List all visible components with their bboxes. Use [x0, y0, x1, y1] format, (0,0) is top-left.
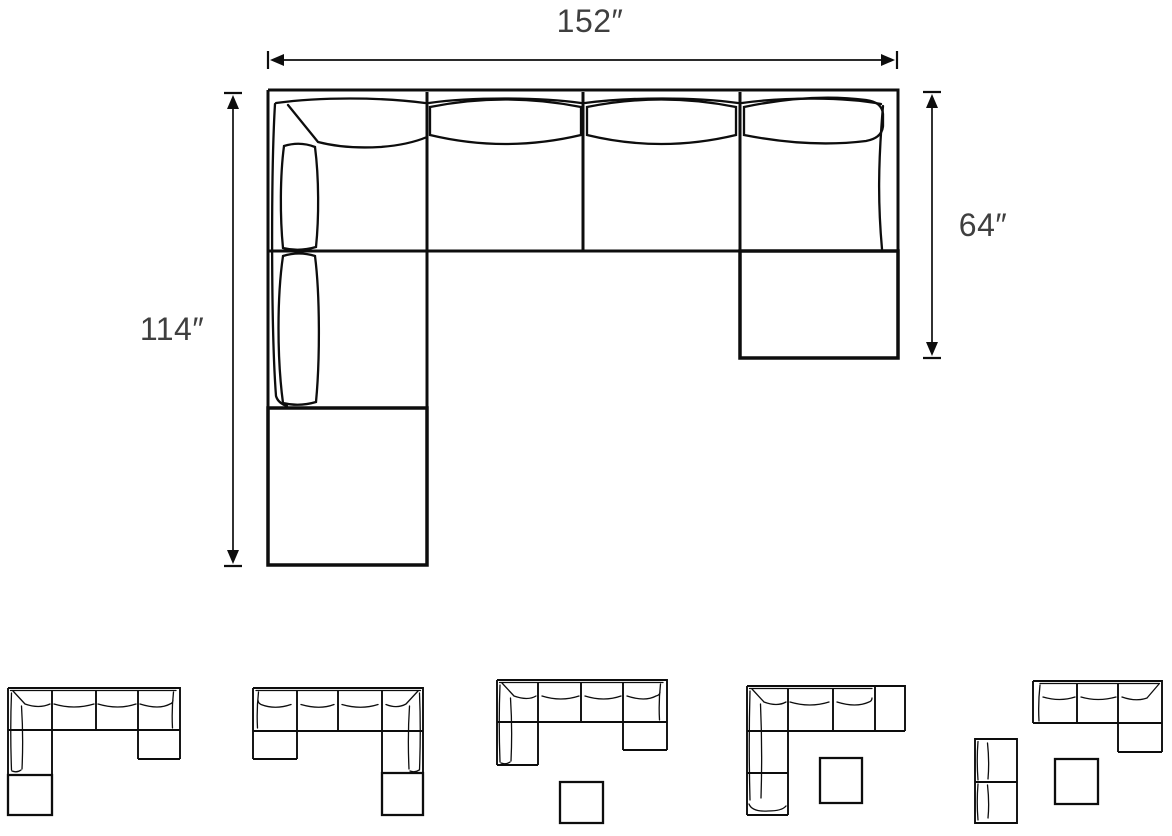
thumb4-ottoman-box	[820, 758, 862, 803]
page: 152″ 114″ 64″	[0, 0, 1172, 836]
chaise-back-cushion-upper	[281, 144, 318, 250]
thumbnail-config-5[interactable]	[975, 681, 1162, 823]
chaise-back-cushion-lower	[279, 254, 319, 405]
thumb4-frame	[747, 686, 905, 815]
left-height-dimension-label: 114″	[140, 311, 204, 347]
thumb3-frame	[497, 680, 667, 765]
thumb5-sofa-frame	[1033, 681, 1162, 752]
arrow-up-icon	[926, 94, 938, 108]
thumb2-frame	[253, 688, 423, 773]
main-sofa-plan	[268, 90, 898, 565]
arrow-down-icon	[926, 342, 938, 356]
thumb1-frame	[8, 688, 180, 775]
arrow-left-icon	[270, 54, 284, 66]
thumb5-ottoman-box	[1055, 759, 1098, 804]
dimension-width: 152″	[268, 3, 897, 69]
corner-back-cushion	[288, 105, 427, 147]
left-ottoman-box	[268, 408, 427, 565]
right-height-dimension-label: 64″	[959, 207, 1007, 243]
thumb2-ottoman-box	[382, 773, 423, 815]
thumb3-ottoman-box	[560, 782, 603, 823]
thumbnail-config-3[interactable]	[497, 680, 667, 823]
back-cushion-2	[430, 100, 581, 145]
dimension-right-height: 64″	[923, 92, 1007, 358]
thumbnail-config-4[interactable]	[747, 686, 905, 815]
thumbnail-config-2[interactable]	[253, 688, 423, 815]
arrow-right-icon	[881, 54, 895, 66]
thumbnail-config-1[interactable]	[8, 688, 180, 815]
sofa-frame	[268, 90, 898, 408]
thumb5-armless-piece-frame	[975, 739, 1017, 823]
sectional-dimension-diagram: 152″ 114″ 64″	[0, 0, 1172, 836]
width-dimension-label: 152″	[557, 3, 624, 39]
thumb5-sofa-cushions	[1039, 684, 1160, 722]
thumb4-cushions	[749, 689, 872, 812]
arrow-down-icon	[227, 550, 239, 564]
thumb5-armless-piece-cushions	[977, 742, 988, 821]
back-cushion-3	[587, 100, 736, 145]
back-cushion-4	[744, 98, 883, 144]
dimension-left-height: 114″	[140, 93, 242, 566]
right-chaise-box	[740, 251, 898, 358]
thumb1-ottoman-box	[8, 775, 52, 815]
arrow-up-icon	[227, 95, 239, 109]
